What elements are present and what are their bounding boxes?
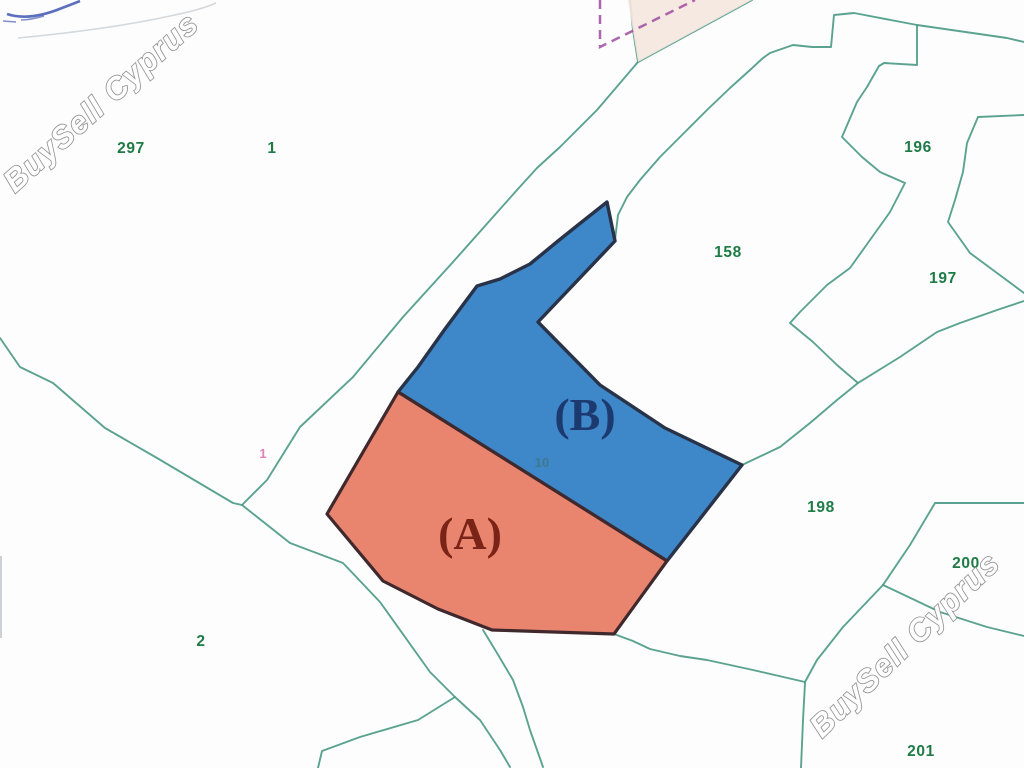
parcel-number-197: 197 [929, 270, 957, 287]
parcel-number-201: 201 [907, 743, 935, 760]
parcel-number-1: 1 [267, 140, 276, 157]
plot-a-label: (A) [438, 508, 502, 559]
parcel-number-196: 196 [904, 139, 932, 156]
boundary-number-label: 10 [535, 455, 549, 470]
plot-b-label: (B) [554, 389, 615, 440]
parcel-number-2: 2 [196, 633, 205, 650]
parcel-number-297: 297 [117, 140, 145, 157]
pink-number-label: 1 [259, 446, 266, 461]
cadastral-map-svg: (A) (B) 10 297 1 196 197 158 198 200 2 2… [0, 0, 1024, 768]
cadastral-map: (A) (B) 10 297 1 196 197 158 198 200 2 2… [0, 0, 1024, 768]
parcel-number-198: 198 [807, 499, 835, 516]
parcel-number-158: 158 [714, 244, 742, 261]
